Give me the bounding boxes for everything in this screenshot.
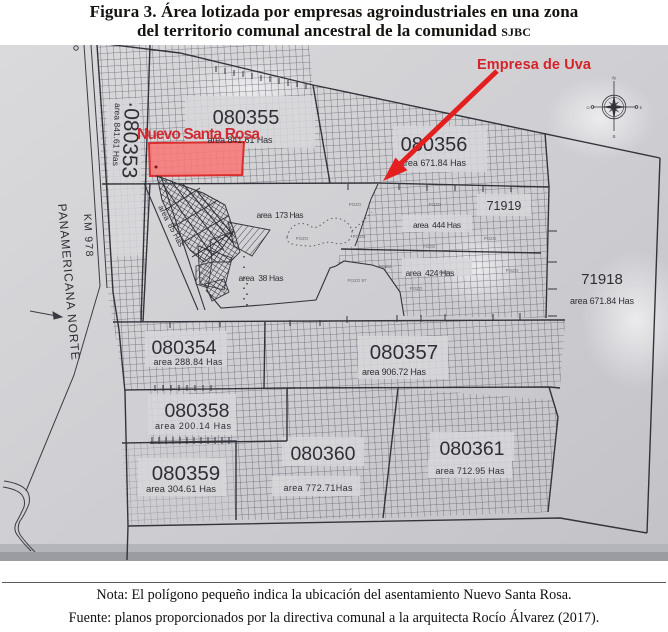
- svg-text:POZO: POZO: [429, 202, 442, 207]
- svg-text:POZO: POZO: [484, 236, 497, 241]
- svg-text:POZO 97: POZO 97: [347, 278, 367, 283]
- svg-text:POZO: POZO: [353, 234, 366, 239]
- svg-text:POZO: POZO: [349, 202, 362, 207]
- svg-text:POZO: POZO: [439, 270, 452, 275]
- svg-text:080360: 080360: [290, 443, 355, 465]
- svg-text:area 38 Has: area 38 Has: [239, 273, 284, 283]
- svg-text:area 772.71Has: area 772.71Has: [284, 483, 354, 493]
- svg-text:POZO: POZO: [423, 244, 436, 249]
- svg-text:Nuevo Santa Rosa: Nuevo Santa Rosa: [137, 126, 260, 143]
- svg-text:area 304.61 Has: area 304.61 Has: [146, 484, 216, 495]
- svg-text:area 712.95 Has: area 712.95 Has: [436, 466, 506, 476]
- svg-text:71919: 71919: [487, 199, 522, 213]
- svg-text:080359: 080359: [152, 462, 220, 485]
- svg-text:area 173 Has: area 173 Has: [257, 210, 304, 220]
- svg-text:area 444 Has: area 444 Has: [413, 220, 461, 230]
- svg-text:area 906.72 Has: area 906.72 Has: [362, 367, 427, 377]
- svg-text:POZO: POZO: [379, 264, 392, 269]
- svg-text:area 671.84 Has: area 671.84 Has: [400, 158, 467, 168]
- svg-text:S: S: [612, 134, 615, 139]
- svg-text:area 288.84 Has: area 288.84 Has: [154, 357, 224, 367]
- svg-text:area 200.14 Has: area 200.14 Has: [155, 421, 232, 431]
- svg-text:080361: 080361: [439, 438, 504, 460]
- svg-text:POZO: POZO: [296, 236, 309, 241]
- svg-text:O: O: [586, 105, 589, 110]
- svg-text:N: N: [612, 76, 615, 81]
- svg-text:POZO: POZO: [506, 268, 519, 273]
- svg-text:080354: 080354: [151, 337, 216, 359]
- svg-text:KM 978: KM 978: [81, 214, 95, 259]
- svg-text:080358: 080358: [164, 400, 229, 422]
- svg-text:E: E: [640, 105, 643, 110]
- svg-text:71918: 71918: [581, 271, 623, 288]
- svg-text:POZO: POZO: [410, 286, 423, 291]
- svg-text:area 671.84 Has: area 671.84 Has: [570, 296, 635, 306]
- svg-text:080357: 080357: [370, 341, 438, 364]
